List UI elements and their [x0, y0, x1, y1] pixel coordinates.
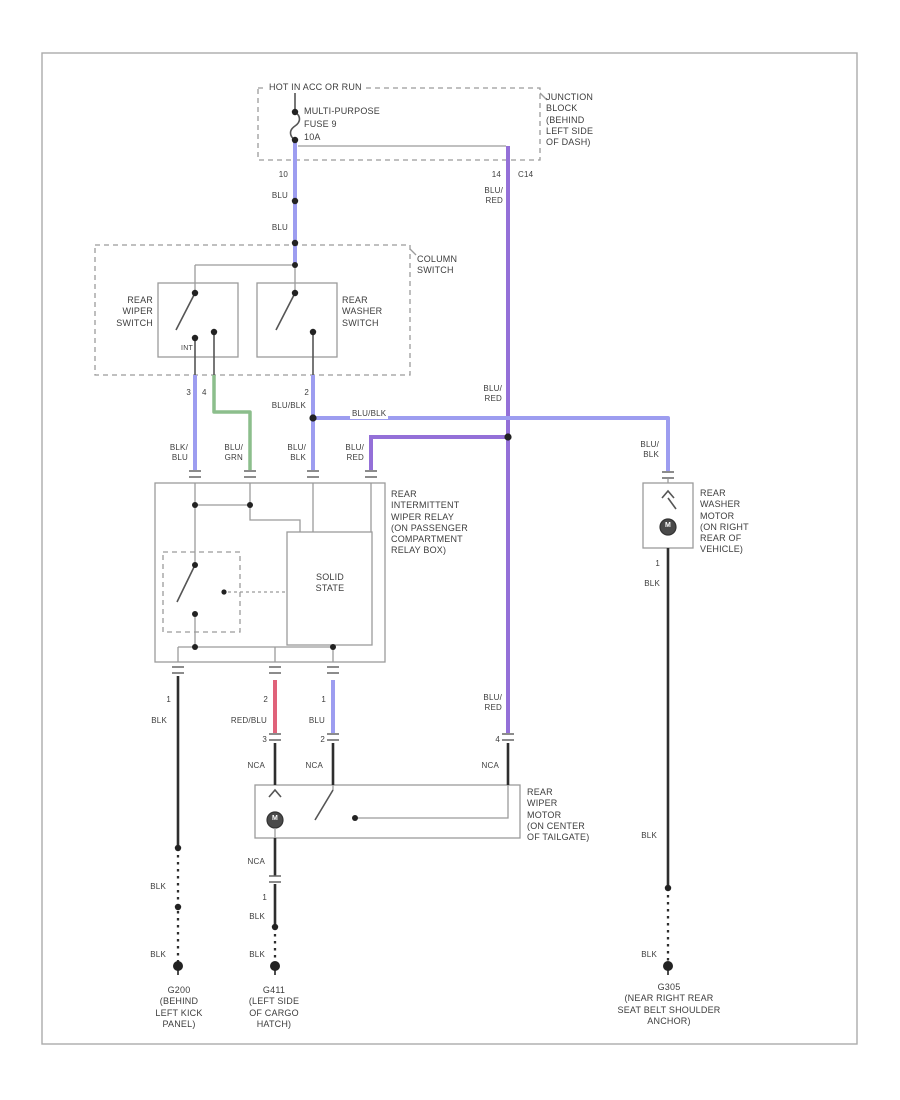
- solid-state-label: SOLID STATE: [316, 572, 345, 595]
- nca-label-1: NCA: [248, 761, 266, 771]
- pin-14: 14: [492, 170, 501, 180]
- wiper-motor-letter: M: [272, 815, 278, 824]
- motor-pin-in-mid: 2: [320, 735, 325, 745]
- connector-c14: C14: [518, 170, 533, 180]
- washer-pin-1: 1: [655, 559, 660, 569]
- wiper-motor-box: [255, 785, 520, 838]
- wire-label-red-blu: RED/BLU: [231, 716, 267, 726]
- wire-label-blu-red-low: BLU/ RED: [483, 693, 502, 713]
- wire-label-blk-right-3: BLK: [641, 950, 657, 960]
- relay-pin-out-left: 1: [166, 695, 171, 705]
- wire-label-blu-grn: BLU/ GRN: [224, 443, 243, 463]
- wire-blu-red-main: [371, 146, 508, 733]
- wiper-motor-label: REAR WIPER MOTOR (ON CENTER OF TAILGATE): [527, 787, 589, 843]
- rear-wiper-switch-label: REAR WIPER SWITCH: [116, 295, 153, 329]
- rear-washer-switch-label: REAR WASHER SWITCH: [342, 295, 382, 329]
- pin-10: 10: [279, 170, 288, 180]
- ground-symbols: [173, 961, 673, 975]
- motor-pin-out: 1: [262, 893, 267, 903]
- wire-label-blk-left-3: BLK: [150, 950, 166, 960]
- wire-label-blk-washer: BLK: [644, 579, 660, 589]
- fuse-name: MULTI-PURPOSE: [304, 106, 380, 117]
- relay-pin-out-mid: 2: [263, 695, 268, 705]
- motor-pin-in-right: 4: [495, 735, 500, 745]
- wire-label-blu-1: BLU: [272, 191, 288, 201]
- wire-label-blu-blk-washer: BLU/ BLK: [640, 440, 659, 460]
- ground-label-right: G305 (NEAR RIGHT REAR SEAT BELT SHOULDER…: [618, 982, 721, 1027]
- relay-label: REAR INTERMITTENT WIPER RELAY (ON PASSEN…: [391, 489, 468, 557]
- wire-label-blu-red-col: BLU/ RED: [345, 443, 364, 463]
- pin-4: 4: [202, 388, 207, 398]
- wire-label-blk-left: BLK: [151, 716, 167, 726]
- nca-label-2: NCA: [306, 761, 324, 771]
- nca-label-4: NCA: [248, 857, 266, 867]
- pin-2: 2: [304, 388, 309, 398]
- ground-label-mid: G411 (LEFT SIDE OF CARGO HATCH): [249, 985, 299, 1030]
- wire-label-blk-left-2: BLK: [150, 882, 166, 892]
- black-ground-wires: [178, 548, 668, 964]
- wire-label-blu-blk-junction: BLU/BLK: [272, 401, 306, 411]
- ground-label-left: G200 (BEHIND LEFT KICK PANEL): [155, 985, 202, 1030]
- relay-box: [155, 483, 385, 662]
- nca-label-3: NCA: [482, 761, 500, 771]
- relay-pin-out-right: 1: [321, 695, 326, 705]
- column-switch-label: COLUMN SWITCH: [417, 254, 457, 277]
- wire-label-blk-blu: BLK/ BLU: [170, 443, 188, 463]
- wire-label-blk-mid-2: BLK: [249, 950, 265, 960]
- wire-label-blk-right-2: BLK: [641, 831, 657, 841]
- wiper-switch-symbol: [158, 283, 238, 375]
- wire-label-blu-red-mid: BLU/ RED: [483, 384, 502, 404]
- motor-pin-in-left: 3: [262, 735, 267, 745]
- wire-label-blu-low: BLU: [309, 716, 325, 726]
- wire-label-blu-blk-col: BLU/ BLK: [287, 443, 306, 463]
- washer-motor-label: REAR WASHER MOTOR (ON RIGHT REAR OF VEHI…: [700, 488, 749, 556]
- wire-label-blu-2: BLU: [272, 223, 288, 233]
- washer-motor-letter: M: [665, 522, 671, 531]
- fuse-rating: 10A: [304, 132, 321, 143]
- washer-motor-box: [643, 479, 693, 548]
- power-note: HOT IN ACC OR RUN: [267, 82, 364, 93]
- pin-3: 3: [186, 388, 191, 398]
- int-position-label: INT: [181, 345, 193, 354]
- junction-block-label: JUNCTION BLOCK (BEHIND LEFT SIDE OF DASH…: [546, 92, 593, 148]
- wire-label-blu-blk-inline: BLU/BLK: [350, 409, 388, 419]
- washer-switch-symbol: [257, 283, 337, 375]
- wiring-diagram-page: HOT IN ACC OR RUN JUNCTION BLOCK (BEHIND…: [0, 0, 900, 1100]
- fuse-id: FUSE 9: [304, 119, 337, 130]
- wire-label-blk-mid-1: BLK: [249, 912, 265, 922]
- junction-block-box: [258, 88, 547, 160]
- wire-label-blu-red-top: BLU/ RED: [484, 186, 503, 206]
